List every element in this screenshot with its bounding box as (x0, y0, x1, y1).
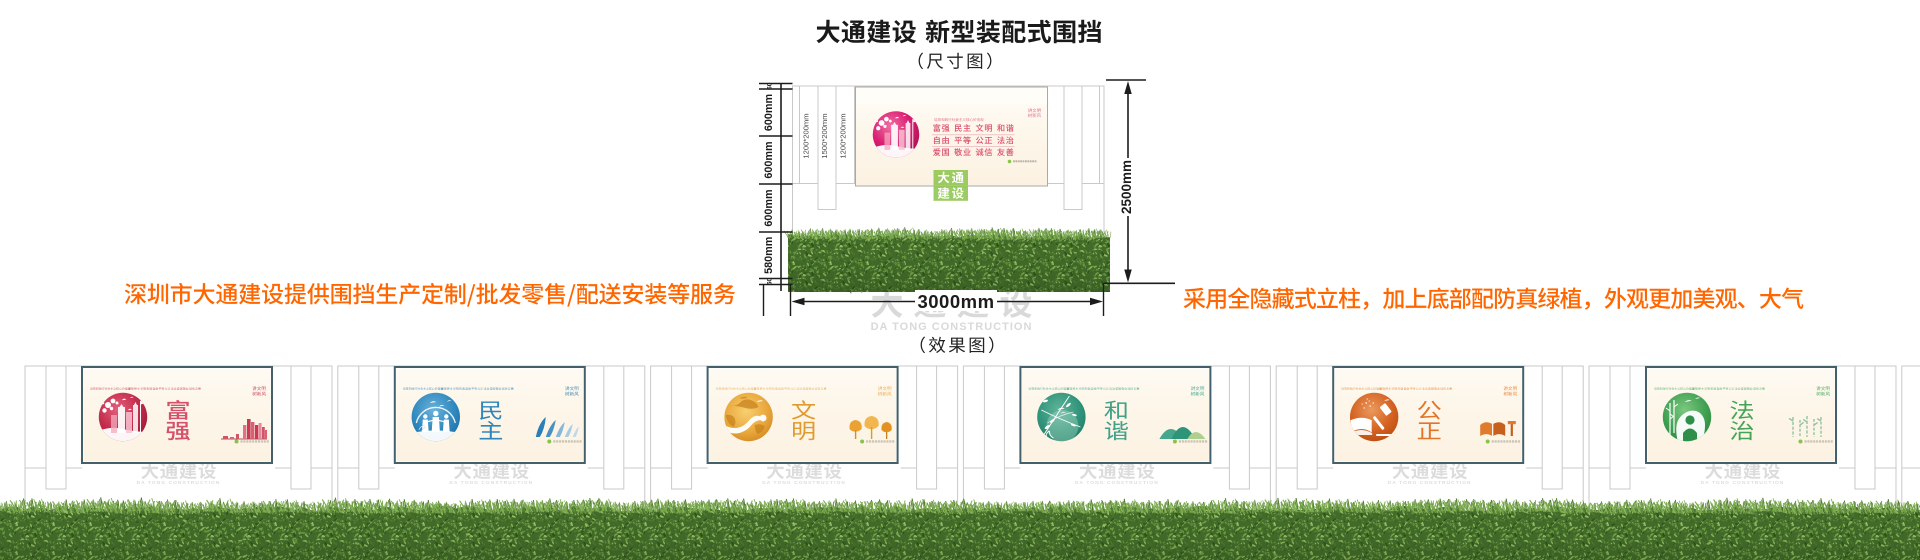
svg-text:DA TONG CONSTRUCTION: DA TONG CONSTRUCTION (1701, 480, 1785, 486)
svg-text:DA TONG CONSTRUCTION: DA TONG CONSTRUCTION (871, 321, 1033, 333)
svg-text:DA TONG CONSTRUCTION: DA TONG CONSTRUCTION (1388, 480, 1472, 486)
svg-text:2500mm: 2500mm (1119, 160, 1134, 214)
svg-text:60: 60 (767, 82, 774, 90)
svg-text:DA TONG CONSTRUCTION: DA TONG CONSTRUCTION (137, 480, 221, 486)
svg-text:1200*200mm: 1200*200mm (838, 113, 847, 158)
svg-text:1200*200mm: 1200*200mm (802, 113, 811, 158)
svg-text:3000mm: 3000mm (917, 291, 994, 312)
svg-text:600mm: 600mm (763, 94, 775, 131)
svg-text:DA TONG CONSTRUCTION: DA TONG CONSTRUCTION (449, 480, 533, 486)
svg-text:60: 60 (767, 278, 774, 286)
svg-text:DA TONG CONSTRUCTION: DA TONG CONSTRUCTION (1075, 480, 1159, 486)
svg-text:600mm: 600mm (763, 189, 775, 226)
svg-text:600mm: 600mm (763, 141, 775, 178)
svg-text:580mm: 580mm (763, 237, 775, 274)
svg-text:DA TONG CONSTRUCTION: DA TONG CONSTRUCTION (762, 480, 846, 486)
svg-text:1500*200mm: 1500*200mm (820, 113, 829, 158)
